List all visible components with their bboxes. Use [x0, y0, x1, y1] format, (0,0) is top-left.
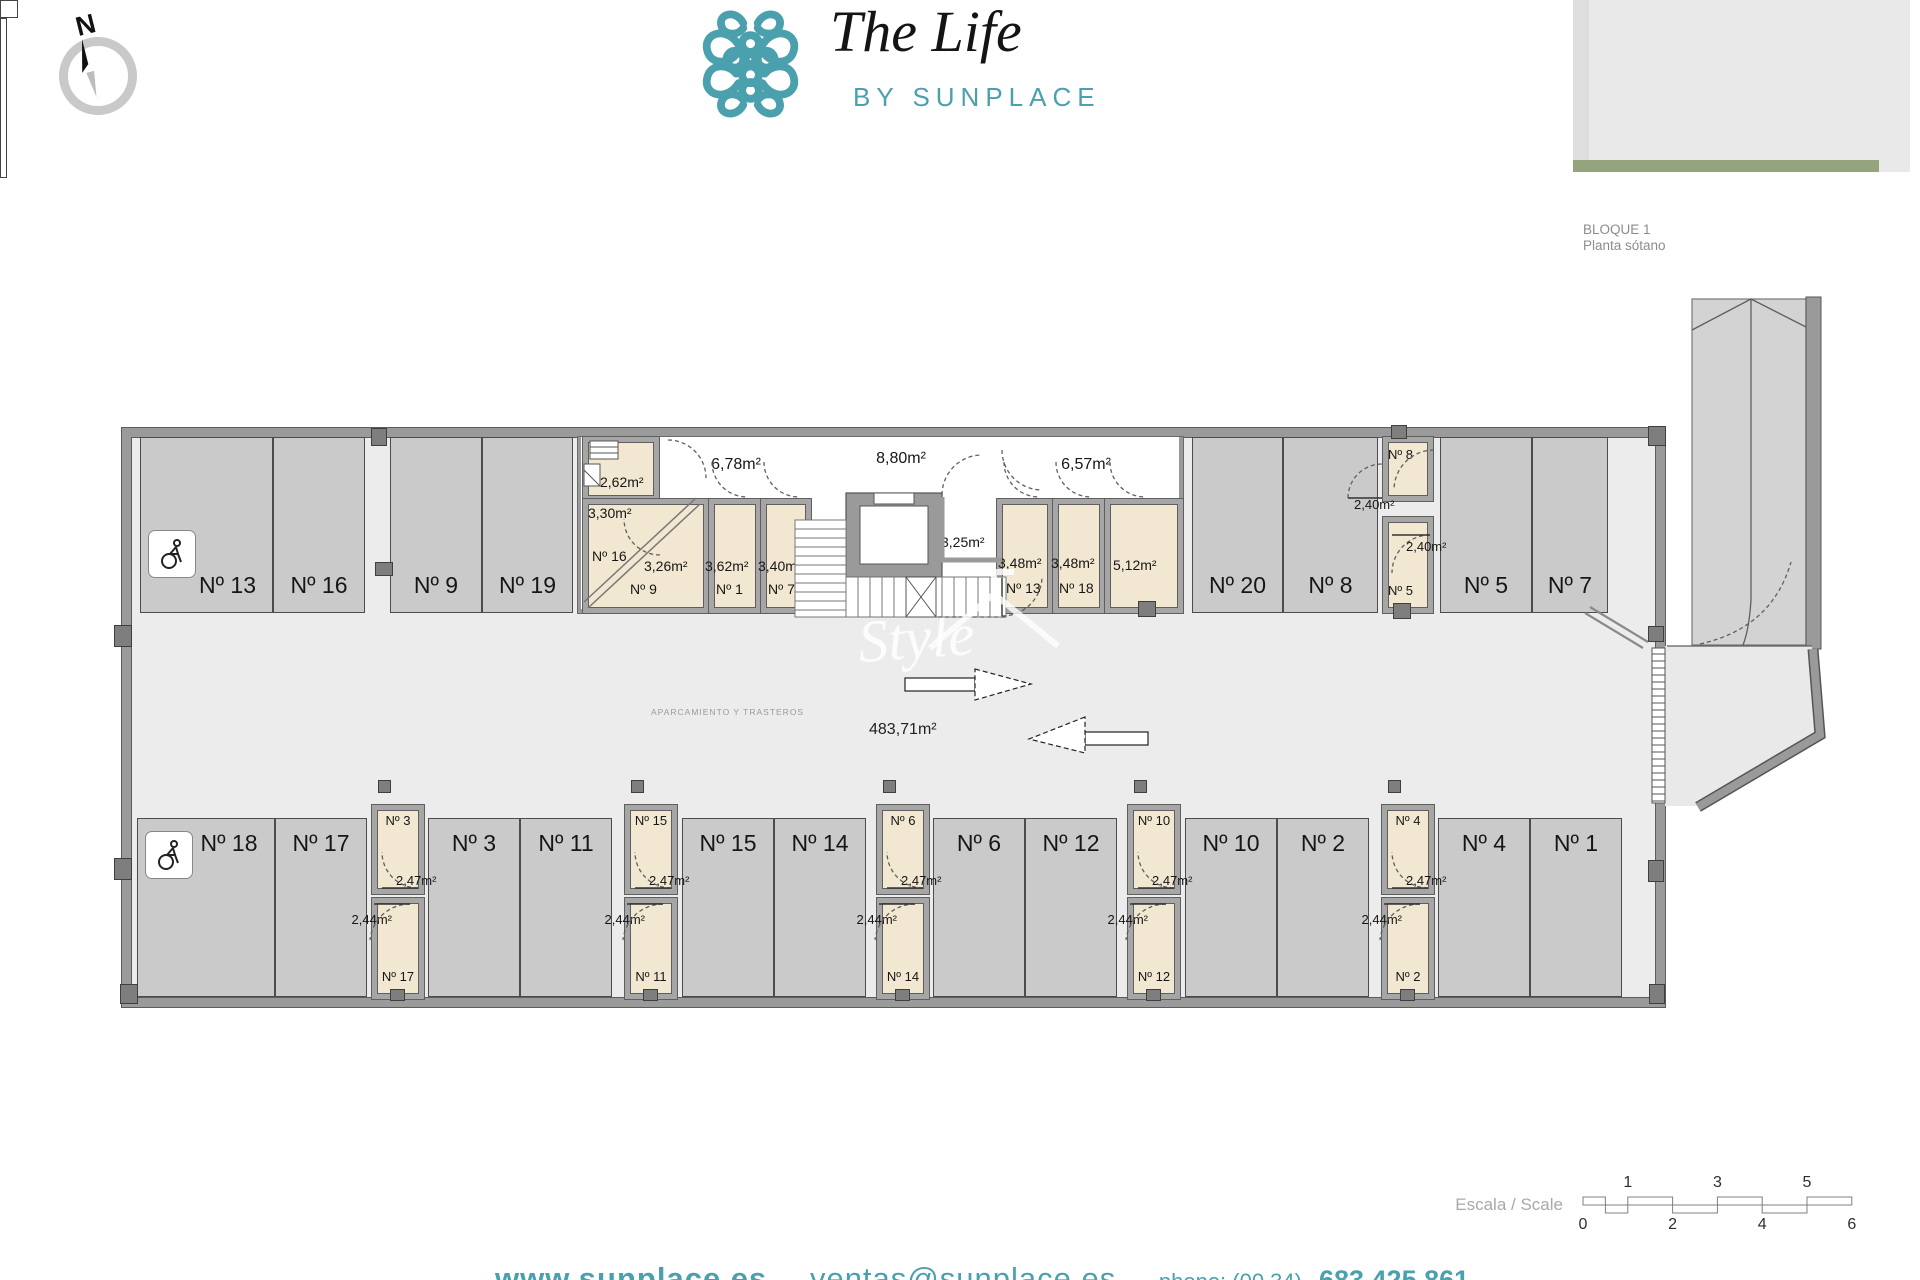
pillar [1391, 425, 1407, 439]
parking-space-label: Nº 13 [141, 572, 272, 612]
room-label: Nº 3 [374, 813, 422, 828]
parking-space-label: Nº 15 [683, 819, 773, 996]
zone-label: APARCAMIENTO Y TRASTEROS [651, 707, 804, 717]
pillar [1648, 426, 1666, 446]
pillar [120, 984, 138, 1004]
parking-space-14: Nº 14 [774, 818, 866, 997]
wall-box [0, 0, 18, 18]
room-label: Nº 14 [879, 969, 927, 984]
room-label: Nº 16 [592, 548, 627, 564]
room-label: Nº 11 [627, 969, 675, 984]
pillar [1648, 860, 1664, 882]
scale-tick: 0 [1579, 1216, 1588, 1234]
room-label: 3,62m² [705, 558, 749, 574]
pillar [378, 780, 391, 793]
wheelchair-icon [148, 530, 196, 578]
room-label: 2,40m² [1406, 539, 1446, 554]
room-label: 2,44m² [1352, 912, 1402, 927]
room-label: Nº 1 [716, 581, 743, 597]
parking-space-17: Nº 17 [275, 818, 367, 997]
separator: - [1133, 1265, 1142, 1280]
gate-strip [0, 18, 7, 178]
parking-space-label: Nº 12 [1026, 819, 1116, 996]
parking-space-label: Nº 3 [429, 819, 519, 996]
scale-tick: 3 [1713, 1174, 1722, 1192]
room-label: 6,78m² [701, 456, 771, 474]
pillar [1400, 989, 1415, 1001]
scale-tick: 6 [1847, 1216, 1856, 1234]
pillar [1648, 626, 1664, 642]
pillar [643, 989, 658, 1001]
pillar [631, 780, 644, 793]
room-label: 2,44m² [847, 912, 897, 927]
parking-space-12: Nº 12 [1025, 818, 1117, 997]
room-label: 6,11m² [871, 550, 917, 567]
parking-space-13: Nº 13 [140, 437, 273, 613]
parking-space-11: Nº 11 [520, 818, 612, 997]
phone-number: 683 425 861 [1319, 1265, 1469, 1280]
email-text: ventas@sunplace.es [810, 1261, 1116, 1280]
room-label: 2,44m² [342, 912, 392, 927]
scale-tick: 2 [1668, 1216, 1677, 1234]
storage-room [583, 437, 659, 501]
parking-space-7: Nº 7 [1532, 437, 1608, 613]
room-label: 2,47m² [901, 873, 941, 888]
phone-prefix: phone: (00 34) [1159, 1269, 1302, 1280]
separator: - [784, 1265, 793, 1280]
parking-space-20: Nº 20 [1192, 437, 1283, 613]
room-label: Nº 17 [374, 969, 422, 984]
room-label: 3,25m² [941, 534, 985, 550]
room-label: Nº 5 [1388, 583, 1413, 598]
room-label: 2,44m² [1098, 912, 1148, 927]
wheelchair-icon [145, 831, 193, 879]
storage-room [1105, 499, 1183, 613]
parking-space-8t: Nº 8 [1283, 437, 1378, 613]
parking-space-label: Nº 7 [1533, 572, 1607, 612]
room-label: 2,47m² [396, 873, 436, 888]
room-label: Nº 4 [1384, 813, 1432, 828]
parking-space-label: Nº 20 [1193, 572, 1282, 612]
pillar [375, 562, 393, 576]
room-label: 2,47m² [649, 873, 689, 888]
parking-space-19: Nº 19 [482, 437, 573, 613]
room-label: 3,40m² [758, 558, 802, 574]
parking-space-label: Nº 8 [1284, 572, 1377, 612]
parking-space-label: Nº 14 [775, 819, 865, 996]
room-label: 6,57m² [1051, 456, 1121, 474]
parking-space-label: Nº 17 [276, 819, 366, 996]
pillar [1393, 603, 1411, 619]
watermark-text: Style [856, 600, 977, 677]
parking-space-10: Nº 10 [1185, 818, 1277, 997]
scale-tick: 1 [1623, 1174, 1632, 1192]
parking-space-label: Nº 5 [1441, 572, 1531, 612]
pillar [1134, 780, 1147, 793]
room-label: 2,40m² [1354, 497, 1394, 512]
parking-space-2: Nº 2 [1277, 818, 1369, 997]
room-label: 2,44m² [595, 912, 645, 927]
pillar [1138, 601, 1156, 617]
pillar [1146, 989, 1161, 1001]
parking-space-label: Nº 1 [1531, 819, 1621, 996]
scale-tick: 4 [1758, 1216, 1767, 1234]
parking-space-16: Nº 16 [273, 437, 365, 613]
parking-space-18: Nº 18 [137, 818, 275, 997]
website-text: www.sunplace.es [495, 1261, 767, 1280]
pillar [895, 989, 910, 1001]
pillar [114, 625, 132, 647]
room-label: Nº 10 [1130, 813, 1178, 828]
pillar [371, 428, 387, 446]
parking-space-label: Nº 9 [391, 572, 481, 612]
scale-label: Escala / Scale [1420, 1195, 1563, 1215]
storage-room [1383, 517, 1433, 613]
room-label: 3,48m² [998, 555, 1042, 571]
scale-tick: 5 [1803, 1174, 1812, 1192]
room-label: 2,47m² [1406, 873, 1446, 888]
pillar [1649, 984, 1665, 1004]
room-label: 5,12m² [1113, 557, 1157, 573]
parking-space-4: Nº 4 [1438, 818, 1530, 997]
parking-space-label: Nº 6 [934, 819, 1024, 996]
contact-footer: www.sunplace.es - ventas@sunplace.es - p… [495, 1261, 1469, 1280]
parking-space-15: Nº 15 [682, 818, 774, 997]
parking-space-6: Nº 6 [933, 818, 1025, 997]
pillar [1388, 780, 1401, 793]
floorplan-sheet: N The Life BY SUNPLACE BLOQUE 1 Planta s… [0, 0, 1920, 1280]
pillar [390, 989, 405, 1001]
parking-space-3: Nº 3 [428, 818, 520, 997]
pillar [883, 780, 896, 793]
parking-space-label: Nº 4 [1439, 819, 1529, 996]
room-label: Nº 12 [1130, 969, 1178, 984]
parking-space-1: Nº 1 [1530, 818, 1622, 997]
parking-space-label: Nº 19 [483, 572, 572, 612]
room-label: 2,62m² [600, 474, 644, 490]
parking-space-label: Nº 2 [1278, 819, 1368, 996]
pillar [114, 858, 132, 880]
parking-space-label: Nº 16 [274, 572, 364, 612]
room-label: Nº 18 [1059, 580, 1094, 596]
room-label: Nº 6 [879, 813, 927, 828]
room-label: Nº 8 [1388, 447, 1413, 462]
room-label: 8,80m² [866, 450, 936, 468]
room-label: Nº 15 [627, 813, 675, 828]
room-label: Nº 2 [1384, 969, 1432, 984]
room-label: Nº 7 [768, 581, 795, 597]
room-label: Nº 13 [1006, 580, 1041, 596]
room-label: Nº 9 [630, 581, 657, 597]
parking-space-5: Nº 5 [1440, 437, 1532, 613]
parking-space-label: Nº 11 [521, 819, 611, 996]
room-label: 3,26m² [644, 558, 688, 574]
parking-space-label: Nº 10 [1186, 819, 1276, 996]
room-label: 3,48m² [1051, 555, 1095, 571]
room-label: 2,47m² [1152, 873, 1192, 888]
total-area-label: 483,71m² [869, 721, 937, 739]
parking-space-9: Nº 9 [390, 437, 482, 613]
room-label: 3,30m² [588, 505, 632, 521]
